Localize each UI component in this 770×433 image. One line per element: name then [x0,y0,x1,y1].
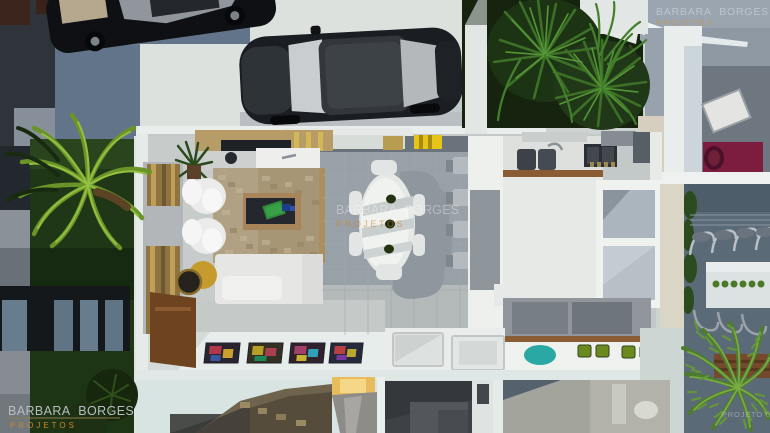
svg-text:PROJETOS: PROJETOS [336,219,405,229]
svg-text:BARBARA BORGES: BARBARA BORGES [336,203,459,217]
svg-text:PROJETO 03: PROJETO 03 [722,410,770,419]
svg-text:PROJETOS: PROJETOS [656,18,714,27]
svg-text:PROJETOS: PROJETOS [10,421,77,430]
svg-text:BARBARA BORGES: BARBARA BORGES [8,404,134,418]
svg-text:BARBARA BORGES: BARBARA BORGES [656,6,769,18]
